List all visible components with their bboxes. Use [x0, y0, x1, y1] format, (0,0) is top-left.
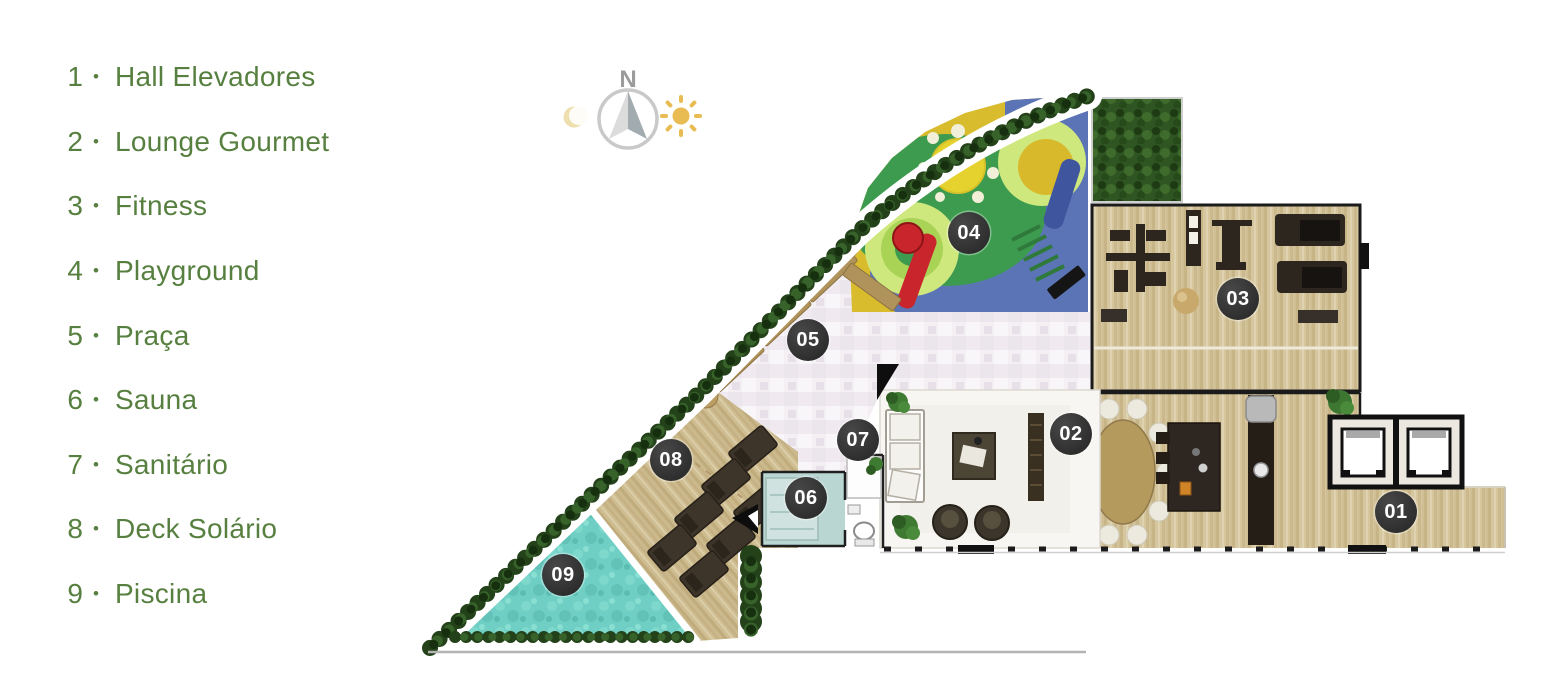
area-marker-sanitario: 07: [837, 419, 879, 461]
legend-item-label: Hall Elevadores: [115, 61, 316, 93]
legend-item-number: 3: [57, 190, 83, 222]
treadmill: [1277, 261, 1347, 293]
legend-item-sauna: 6 • Sauna: [57, 368, 329, 433]
sideboard: [1028, 413, 1044, 501]
legend-item-label: Praça: [115, 320, 190, 352]
area-marker-fitness: 03: [1217, 278, 1259, 320]
elevators: [1330, 417, 1462, 487]
lounge-area: [877, 364, 1100, 548]
area-marker-praca: 05: [787, 319, 829, 361]
compass-needle: [609, 91, 628, 139]
legend-item-number: 8: [57, 513, 83, 545]
legend-item-hall-elevadores: 1 • Hall Elevadores: [57, 45, 329, 110]
area-marker-sauna: 06: [785, 477, 827, 519]
bullet-icon: •: [93, 196, 99, 216]
legend-item-deck-solario: 8 • Deck Solário: [57, 497, 329, 562]
legend-item-label: Sauna: [115, 384, 197, 416]
legend-item-playground: 4 • Playground: [57, 239, 329, 304]
legend-item-label: Deck Solário: [115, 513, 277, 545]
coffee-table: [953, 433, 995, 479]
area-marker-playground: 04: [948, 212, 990, 254]
legend-item-label: Piscina: [115, 578, 207, 610]
bullet-icon: •: [93, 132, 99, 152]
legend-item-number: 7: [57, 449, 83, 481]
legend-item-label: Lounge Gourmet: [115, 126, 329, 158]
legend-item-lounge-gourmet: 2 • Lounge Gourmet: [57, 110, 329, 175]
legend-item-fitness: 3 • Fitness: [57, 174, 329, 239]
bullet-icon: •: [93, 67, 99, 87]
legend-item-number: 5: [57, 320, 83, 352]
legend-item-number: 9: [57, 578, 83, 610]
kitchen-island: [1246, 395, 1276, 545]
legend-item-piscina: 9 • Piscina: [57, 562, 329, 627]
elevator-shaft: [1342, 429, 1384, 476]
bullet-icon: •: [93, 261, 99, 281]
treadmill: [1275, 214, 1345, 246]
legend-item-number: 6: [57, 384, 83, 416]
legend-item-praca: 5 • Praça: [57, 303, 329, 368]
toilet: [854, 523, 874, 547]
legend-item-label: Playground: [115, 255, 260, 287]
elevator-shaft: [1408, 429, 1450, 476]
bullet-icon: •: [93, 519, 99, 539]
legend-item-number: 4: [57, 255, 83, 287]
area-marker-hall-elevadores: 01: [1375, 491, 1417, 533]
armchair: [933, 505, 967, 539]
area-marker-deck-solario: 08: [650, 439, 692, 481]
legend-item-number: 2: [57, 126, 83, 158]
sanitario-area: [845, 455, 883, 548]
compass: N: [564, 66, 701, 148]
bullet-icon: •: [93, 326, 99, 346]
sun-icon: [662, 97, 700, 135]
bullet-icon: •: [93, 584, 99, 604]
moon-icon: [564, 106, 589, 128]
hedge-patch: [1092, 98, 1182, 202]
bullet-icon: •: [93, 455, 99, 475]
legend-item-sanitario: 7 • Sanitário: [57, 433, 329, 498]
legend-item-label: Sanitário: [115, 449, 228, 481]
legend: 1 • Hall Elevadores 2 • Lounge Gourmet 3…: [57, 45, 329, 626]
bullet-icon: •: [93, 390, 99, 410]
armchair: [975, 506, 1009, 540]
legend-item-number: 1: [57, 61, 83, 93]
area-marker-lounge-gourmet: 02: [1050, 413, 1092, 455]
sofa: [886, 410, 924, 502]
legend-item-label: Fitness: [115, 190, 207, 222]
area-marker-piscina: 09: [542, 554, 584, 596]
exercise-ball: [1173, 288, 1199, 314]
